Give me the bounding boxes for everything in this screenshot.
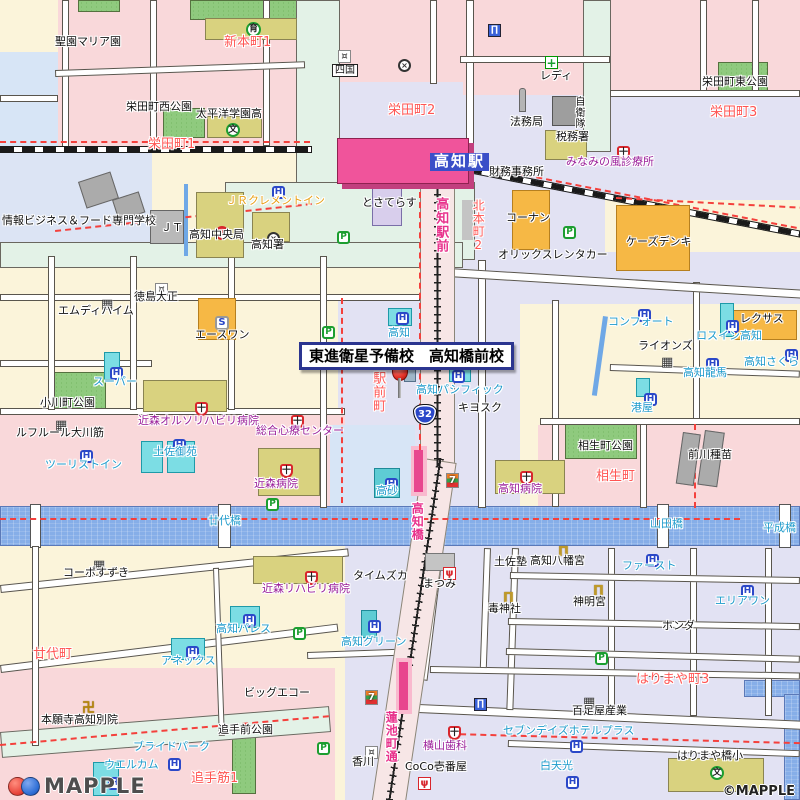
map-label: 廿代町 [33, 648, 72, 662]
road [0, 95, 58, 102]
tram-stop-platform [399, 662, 408, 710]
map-label: レディ [540, 70, 572, 82]
map-label: 栄田町1 [148, 138, 195, 152]
district-boundary [0, 518, 740, 520]
map-label: エースワン [195, 329, 249, 341]
parking-icon: P [266, 498, 279, 511]
map-label: 高知病院 [498, 483, 542, 495]
map-label: 追手前公園 [218, 724, 273, 736]
hotel-icon: H [396, 312, 409, 325]
map-label: 土佐御苑 [153, 446, 197, 458]
map-label: レクサス [740, 313, 784, 325]
map-label: スーパー [93, 376, 137, 388]
map-label: 高知駅 [430, 153, 489, 171]
map-label: エムディハイム [58, 305, 134, 317]
map-canvas[interactable]: 東進衛星予備校 高知橋前校 MAPPLE ©MAPPLE 育¤×∏文+十〒×HP… [0, 0, 800, 800]
map-label: 香川 [352, 756, 374, 768]
map-label: 平成橋 [763, 522, 796, 534]
bridge [30, 504, 41, 548]
map-label: 港屋 [631, 402, 653, 414]
map-label: 百足屋産業 [572, 705, 627, 717]
park [78, 0, 120, 12]
map-label: ブライドパーク [133, 741, 210, 753]
map-label: 蓮池町通 [384, 711, 397, 763]
map-label: 高知パレス [216, 623, 271, 635]
parking-icon: P [595, 652, 608, 665]
main-road [296, 0, 340, 186]
monument-icon [519, 88, 526, 112]
map-label: 北本町2 [471, 199, 484, 253]
map-label: 高知橋 [410, 502, 423, 541]
map-label: 高知グリーン [341, 636, 406, 648]
bank-icon: ¤ [338, 50, 351, 63]
map-label: ホンダ [662, 620, 695, 632]
map-label: 法務局 [510, 116, 543, 128]
map-label: ウエルカム [104, 759, 159, 771]
pharmacy-icon: + [545, 56, 558, 69]
road [466, 0, 474, 148]
hotel-icon: H [570, 740, 583, 753]
hotel-icon: H [566, 776, 579, 789]
hotel-icon: H [452, 370, 465, 383]
map-label: 前川種苗 [688, 449, 732, 461]
map-label: 毒神社 [488, 603, 521, 615]
map-label: 太平洋学園高 [196, 108, 262, 120]
map-label: とさてらす [362, 197, 417, 209]
map-label: 廿代橋 [208, 515, 241, 527]
map-label: 山田橋 [650, 518, 683, 530]
map-label: 聖園マリア園 [55, 36, 121, 48]
map-label: 高知パシフィック [416, 384, 504, 396]
map-label: 土佐塾 [494, 556, 527, 568]
school-icon: 文 [226, 123, 240, 137]
map-label: コーポすずき [63, 567, 129, 579]
map-label: CoCo壱番屋 [405, 761, 467, 773]
map-label: 相生町 [596, 470, 635, 484]
seven-eleven-icon: 7 [446, 473, 459, 488]
map-label: タイムズカ [353, 570, 408, 582]
map-label: 近森オルソリハビリ病院 [138, 415, 259, 427]
road [48, 256, 55, 410]
stream [184, 184, 188, 256]
map-label: 白天光 [540, 760, 573, 772]
map-label: 近森病院 [254, 478, 298, 490]
district-boundary [341, 298, 343, 503]
map-label: 駅前町 [370, 371, 384, 413]
map-label: 小川町公園 [40, 397, 95, 409]
map-label: ルフルール大川筋 [16, 427, 104, 439]
map-label: 栄田町2 [388, 104, 435, 118]
road [320, 256, 327, 508]
map-label: 栄田町東公園 [702, 76, 768, 88]
building [253, 556, 343, 584]
road [693, 282, 700, 420]
map-label: 高知龍馬 [683, 367, 727, 379]
map-label: オリックスレンタカー [498, 249, 608, 261]
map-label: 高知駅前 [433, 197, 447, 253]
mapple-blue-apple-icon [21, 777, 40, 796]
road [608, 548, 615, 710]
map-label: ビッグエコー [244, 687, 310, 699]
map-label: コンフォート [608, 316, 674, 328]
hotel-icon: H [368, 620, 381, 633]
road [460, 56, 610, 63]
police-box-icon: × [398, 59, 411, 72]
hospital-icon: 十 [280, 464, 293, 478]
map-label: 横山歯科 [423, 740, 467, 752]
map-label: 追手筋1 [191, 772, 238, 786]
highlighted-place-callout[interactable]: 東進衛星予備校 高知橋前校 [299, 342, 514, 370]
map-label: ツーリストイン [45, 459, 122, 471]
map-label: ＪＲクレメントイン [226, 195, 325, 207]
school-icon: 文 [710, 766, 724, 780]
map-label: セブンデイズホテルプラス [503, 725, 634, 737]
map-label: 高知八幡宮 [530, 555, 585, 567]
map-label: 栄田町西公園 [126, 101, 192, 113]
road [430, 0, 437, 84]
map-label: 財務事務所 [489, 166, 544, 178]
mapple-logo-text: MAPPLE [44, 774, 146, 798]
public-facility-icon: ∏ [474, 698, 487, 711]
seven-eleven-icon: 7 [365, 690, 378, 705]
tram-stop-platform [414, 450, 423, 492]
map-label: 税務署 [556, 131, 589, 143]
map-label: 神明宮 [573, 596, 606, 608]
road [540, 418, 800, 425]
map-label: 高知中央局 [189, 229, 244, 241]
map-label: 高砂 [376, 485, 398, 497]
map-label: みなみの風診療所 [566, 156, 654, 168]
hospital-icon: 十 [448, 726, 461, 740]
parking-icon: P [337, 231, 350, 244]
map-label: 高知さくら [744, 356, 799, 368]
map-label: 本願寺高知別院 [41, 714, 118, 726]
road [640, 418, 647, 508]
parking-icon: P [563, 226, 576, 239]
road [765, 548, 772, 716]
map-label: ライオンズ [638, 340, 693, 352]
parking-icon: P [293, 627, 306, 640]
map-label: ファースト [622, 560, 676, 572]
map-area [0, 0, 58, 52]
map-label: コーナン [506, 212, 550, 224]
map-label: 四国 [332, 64, 358, 77]
map-label: 情報ビジネス＆フード専門学校 [2, 215, 156, 227]
parking-icon: P [317, 742, 330, 755]
restaurant-icon: ψ [418, 777, 431, 790]
map-label: 徳島大正 [134, 291, 178, 303]
map-label: 栄田町3 [710, 106, 757, 120]
mapple-logo: MAPPLE [8, 774, 146, 798]
map-label: キヨスク [458, 402, 502, 414]
map-label: 近森リハビリ病院 [262, 583, 350, 595]
map-label: エリアワン [715, 595, 770, 607]
road [32, 546, 39, 746]
map-label: 自衛隊 [573, 96, 584, 129]
map-label: アネックス [161, 655, 216, 667]
copyright-notice: ©MAPPLE [723, 784, 795, 799]
map-label: 高知 [388, 327, 410, 339]
map-label: はりまや橋小 [677, 750, 743, 762]
road [610, 90, 800, 97]
map-label: まつみ [423, 578, 456, 590]
map-label: ＪＴ [161, 222, 183, 234]
map-label: 総合心療センター [256, 425, 344, 437]
building [143, 380, 227, 412]
map-label: 高知署 [251, 239, 284, 251]
building-icon: ▦ [661, 356, 673, 369]
public-facility-icon: ∏ [488, 24, 501, 37]
map-label: 相生町公園 [578, 440, 633, 452]
map-label: はりまや町3 [636, 673, 709, 687]
hotel-icon: H [168, 758, 181, 771]
parking-icon: P [322, 326, 335, 339]
map-label: ケーズデンキ [626, 236, 691, 248]
map-label: 新本町1 [224, 36, 271, 50]
map-label: ロスイン高知 [696, 330, 762, 342]
